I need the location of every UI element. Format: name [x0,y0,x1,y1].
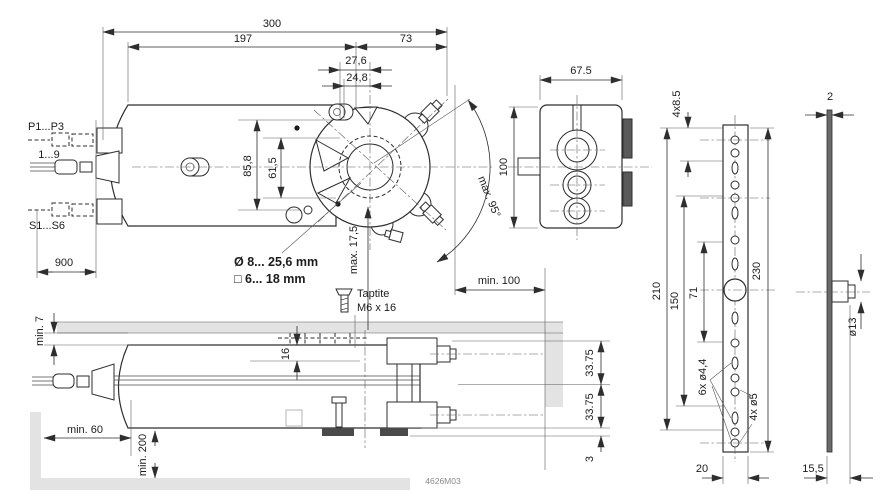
dim-100: 100 [498,158,510,176]
dim-15-5: 15,5 [802,463,823,475]
dim-61-5: 61,5 [267,157,279,178]
actuator-body-top [110,105,336,226]
label-p1-p3: P1...P3 [28,121,64,133]
label-shaft-square: □ 6... 18 mm [234,272,305,286]
label-taptite: Taptite [357,288,389,300]
screw-cluster-right [419,201,445,227]
drawing-number: 4626M03 [425,476,461,486]
dim-67-5: 67.5 [570,65,591,77]
dim-71: 71 [688,287,700,299]
bracket-view: 4x8.5 210 150 71 230 6x ø4,4 4x ø5 20 [651,91,775,484]
dim-min-7: min. 7 [34,316,46,346]
dim-27-6: 27,6 [345,55,366,67]
dim-4x8-5: 4x8.5 [671,91,683,118]
taptite-screw-icon [336,289,355,348]
cable-side [32,364,114,400]
dim-210: 210 [651,282,663,300]
dim-max-17-5: max. 17,5 [348,226,360,274]
dim-20: 20 [696,463,708,475]
actuator-dimension-drawing: 300 197 73 27,6 24,8 85,8 61,5 max. 17,5 [0,0,885,501]
actuator-body-side [119,345,421,428]
plate-edge [827,110,832,452]
dim-33-75-top: 33.75 [584,349,596,377]
dim-85-8: 85,8 [242,155,254,176]
dim-300: 300 [263,18,281,30]
dim-min-100: min. 100 [478,275,520,287]
mount-view: Taptite M6 x 16 min. 7 16 33.75 33.75 3 [32,288,610,478]
dim-230: 230 [751,262,763,280]
dim-197: 197 [234,33,252,45]
screw-cluster-bottom [384,228,403,242]
dim-73: 73 [400,33,412,45]
dim-13: ø13 [847,318,859,337]
bracket-dimensions: 4x8.5 210 150 71 230 6x ø4,4 4x ø5 20 [651,91,774,484]
technical-drawing: 300 197 73 27,6 24,8 85,8 61,5 max. 17,5 [0,0,885,501]
label-1-9: 1...9 [38,149,59,161]
end-view: 67.5 100 [498,65,652,240]
dim-2: 2 [827,91,833,103]
plate-view: 2 ø13 15,5 [796,91,873,484]
label-shaft-round: Ø 8... 25,6 mm [234,255,318,269]
dim-min-200: min. 200 [137,434,149,476]
dim-150: 150 [669,292,681,310]
label-taptite-size: M6 x 16 [357,302,396,314]
dim-min-60: min. 60 [67,424,103,436]
screw-cluster-top [417,99,443,125]
dim-24-8: 24,8 [346,72,367,84]
dim-max-95: max. 95° [475,174,502,219]
dim-16: 16 [280,348,292,360]
dim-33-75-bottom: 33.75 [584,393,596,421]
dim-4x-5: 4x ø5 [748,393,760,421]
dim-900: 900 [55,257,73,269]
dim-6x-4-4: 6x ø4,4 [697,359,709,396]
dim-3: 3 [584,456,596,462]
label-s1-s6: S1...S6 [29,220,65,232]
